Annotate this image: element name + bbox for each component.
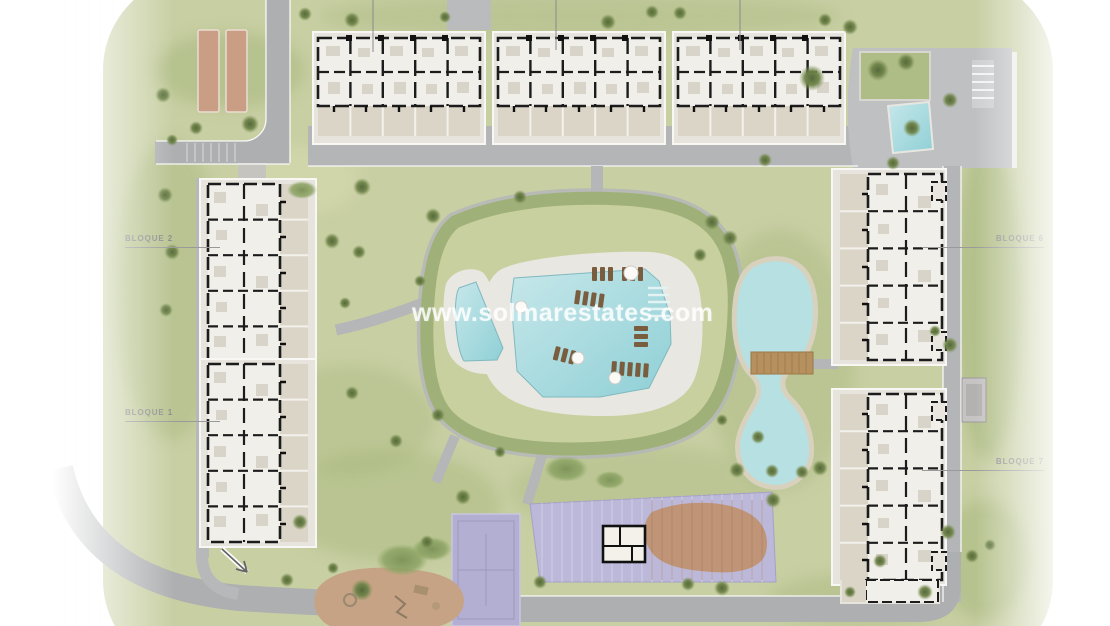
- site-plan: BLOQUE 2 BLOQUE 1 BLOQUE 6 BLOQUE 7 www.…: [0, 0, 1110, 626]
- building-bloque-2: [200, 179, 316, 367]
- label-bloque-6: BLOQUE 6: [948, 234, 1044, 243]
- playground: [314, 568, 464, 626]
- watermark: www.solmarestates.com: [412, 299, 713, 328]
- pool-house: [603, 526, 645, 562]
- label-bloque-7: BLOQUE 7: [948, 457, 1044, 466]
- building-top-2: [493, 32, 665, 144]
- building-bloque-7: [832, 389, 946, 585]
- pond: [737, 261, 813, 485]
- building-bloque-6: [832, 169, 946, 365]
- label-bloque-1: BLOQUE 1: [125, 408, 221, 417]
- label-bloque-6-leader: [922, 247, 1044, 248]
- wooden-bridge: [751, 352, 813, 374]
- utility-box: [962, 378, 986, 422]
- label-bloque-2-leader: [125, 247, 220, 248]
- label-bloque-1-leader: [125, 421, 220, 422]
- parking-area: [530, 492, 776, 582]
- building-top-1: [313, 32, 485, 144]
- label-bloque-7-leader: [922, 470, 1044, 471]
- main-pool: [511, 269, 671, 397]
- plaza-stairs: [972, 60, 994, 108]
- label-bloque-2: BLOQUE 2: [125, 234, 221, 243]
